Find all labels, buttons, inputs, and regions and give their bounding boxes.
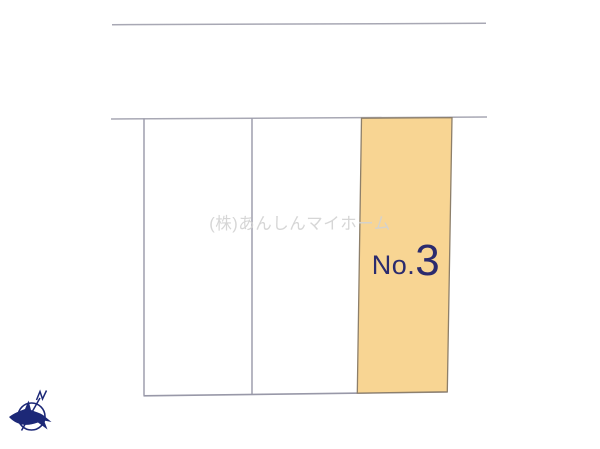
road-edge-top-line xyxy=(112,23,486,24)
site-plan-image: (株)あんしんマイホーム No.3 xyxy=(0,0,600,449)
company-watermark: (株)あんしんマイホーム xyxy=(209,214,391,233)
plot-3-label-number: 3 xyxy=(415,236,440,285)
site-plan-drawing: (株)あんしんマイホーム No.3 xyxy=(0,0,600,449)
north-arrow-icon xyxy=(37,391,47,401)
north-compass-bird-icon xyxy=(9,391,52,431)
plot-3-label-prefix: No. xyxy=(372,250,416,280)
